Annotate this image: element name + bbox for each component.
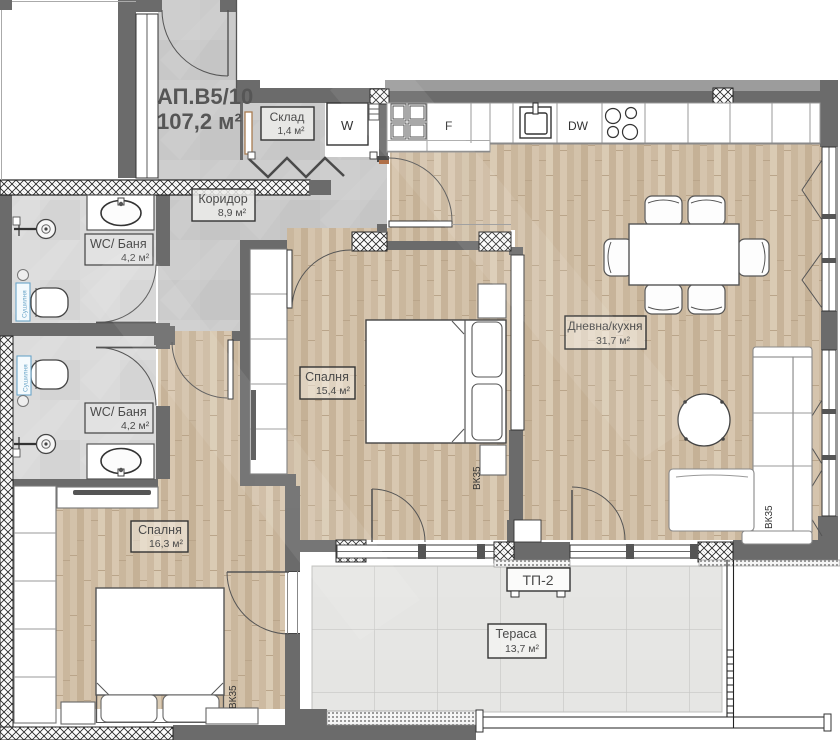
svg-text:W: W: [341, 118, 354, 133]
svg-text:Сушилня: Сушилня: [23, 364, 30, 392]
svg-text:Коридор: Коридор: [198, 192, 247, 206]
svg-text:4,2 м²: 4,2 м²: [121, 420, 150, 432]
svg-text:Склад: Склад: [270, 110, 305, 124]
svg-text:13,7 м²: 13,7 м²: [505, 643, 540, 655]
svg-text:АП.В5/10: АП.В5/10: [157, 84, 253, 109]
svg-text:Спалня: Спалня: [138, 523, 182, 537]
svg-text:ВК35: ВК35: [764, 505, 775, 529]
svg-text:WC/ Баня: WC/ Баня: [90, 405, 147, 419]
svg-text:ТП-2: ТП-2: [522, 572, 553, 588]
svg-text:16,3 м²: 16,3 м²: [149, 538, 184, 550]
svg-text:Спалня: Спалня: [305, 370, 349, 384]
svg-text:Тераса: Тераса: [496, 627, 537, 641]
svg-text:107,2 м²: 107,2 м²: [157, 109, 242, 134]
svg-text:15,4 м²: 15,4 м²: [316, 385, 351, 397]
svg-text:Сушилня: Сушилня: [22, 290, 29, 318]
svg-text:ВК35: ВК35: [472, 466, 483, 490]
svg-text:DW: DW: [568, 119, 589, 133]
svg-text:1,4 м²: 1,4 м²: [278, 126, 306, 137]
svg-text:8,9 м²: 8,9 м²: [218, 207, 247, 219]
svg-text:ВК35: ВК35: [228, 685, 239, 709]
